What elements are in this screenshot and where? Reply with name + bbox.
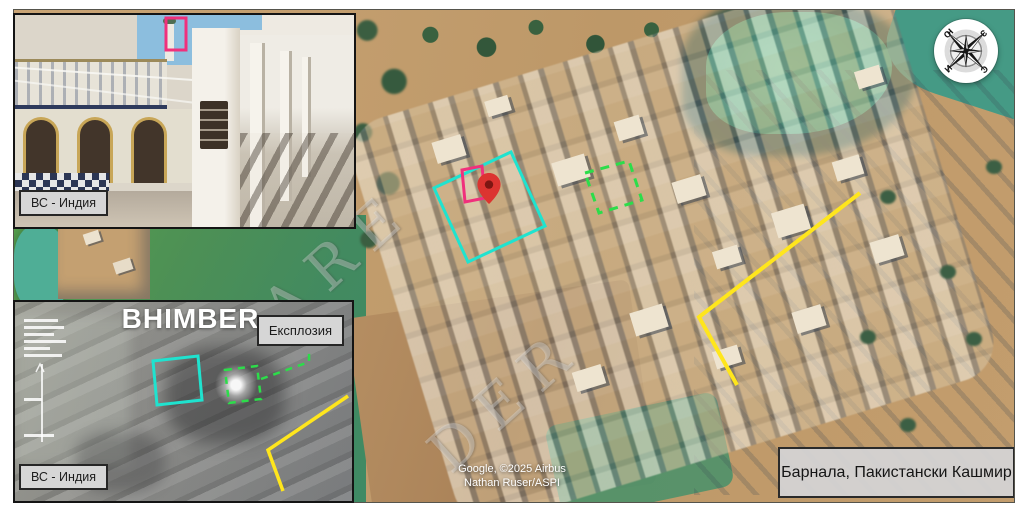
figure: ARE DER Google, ©2025 Airbus Nathan Ruse…: [0, 0, 1023, 514]
compass-rose-icon: С И Ю З: [934, 19, 998, 83]
photo-floor-shadows: [240, 133, 354, 227]
map-texture-tree: [966, 332, 982, 346]
map-texture-tree: [860, 330, 876, 344]
map-texture-tree: [986, 160, 1002, 174]
explosion-label: Експлозия: [257, 315, 344, 346]
map-texture-tree: [940, 265, 956, 279]
map-texture-tree: [900, 418, 916, 432]
photo-arabic-sign: [200, 101, 228, 149]
map-attribution: Google, ©2025 Airbus Nathan Ruser/ASPI: [412, 462, 612, 490]
inset-aerial-ir: BHIMBER Експлозия ВС - Индия: [13, 300, 354, 503]
hud-text-row: [24, 354, 62, 357]
hud-crosshair-line: [41, 364, 43, 442]
hud-text-row: [24, 347, 50, 350]
map-texture-tree: [880, 190, 896, 204]
map-texture-buildings-band: [58, 217, 150, 299]
source-label: ВС - Индия: [19, 190, 108, 216]
hud-text-row: [24, 398, 42, 401]
inset-ground-photo: ВС - Индия: [13, 13, 356, 229]
photo-minaret-cap: [163, 18, 176, 24]
attribution-line2: Nathan Ruser/ASPI: [412, 476, 612, 490]
ir-explosion-glow: [213, 362, 259, 408]
photo-arcade: [15, 109, 192, 183]
source-label: ВС - Индия: [19, 464, 108, 490]
photo-corridor: [192, 15, 354, 227]
hud-text-row: [24, 340, 66, 343]
hud-text-row: [24, 434, 54, 437]
photo-minaret: [165, 19, 174, 61]
photo-arch: [131, 117, 167, 183]
attribution-line1: Google, ©2025 Airbus: [412, 462, 612, 476]
location-label: Барнала, Пакистански Кашмир: [778, 447, 1015, 498]
